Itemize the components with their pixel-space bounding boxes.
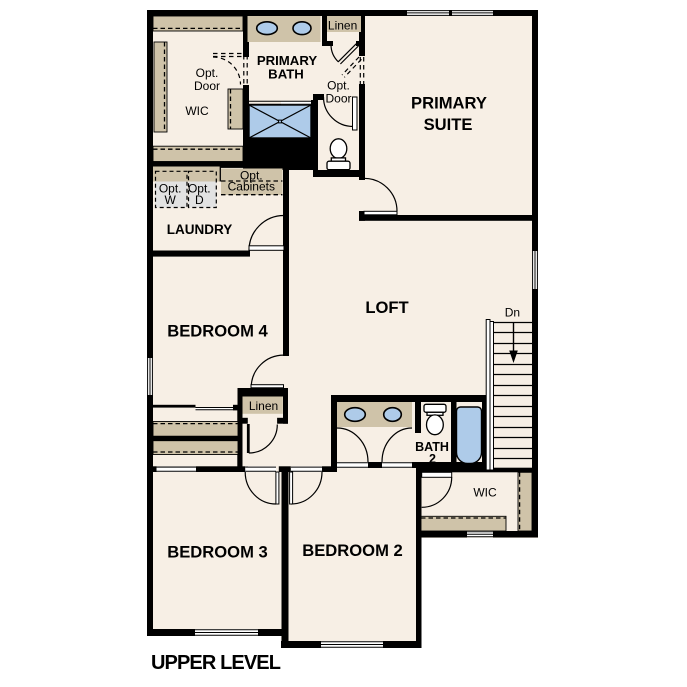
- svg-text:SUITE: SUITE: [424, 115, 473, 134]
- svg-text:BEDROOM 2: BEDROOM 2: [302, 541, 403, 560]
- svg-text:LAUNDRY: LAUNDRY: [167, 222, 233, 237]
- svg-text:WIC: WIC: [185, 104, 209, 118]
- svg-text:W: W: [165, 193, 177, 207]
- svg-text:WIC: WIC: [473, 485, 497, 499]
- svg-text:BEDROOM 3: BEDROOM 3: [167, 543, 268, 562]
- svg-text:Door: Door: [325, 92, 351, 106]
- svg-text:Linen: Linen: [328, 19, 357, 33]
- svg-text:BATH: BATH: [268, 67, 304, 82]
- svg-text:Door: Door: [194, 79, 220, 93]
- svg-text:Dn: Dn: [505, 305, 520, 319]
- svg-text:Opt.: Opt.: [196, 66, 219, 80]
- svg-text:2: 2: [429, 452, 436, 466]
- svg-text:Cabinets: Cabinets: [228, 180, 275, 194]
- svg-text:LOFT: LOFT: [365, 298, 408, 317]
- svg-text:PRIMARY: PRIMARY: [411, 94, 487, 113]
- svg-text:UPPER LEVEL: UPPER LEVEL: [151, 652, 281, 674]
- svg-text:D: D: [195, 193, 204, 207]
- svg-text:BEDROOM 4: BEDROOM 4: [167, 322, 268, 341]
- svg-text:Opt.: Opt.: [327, 79, 350, 93]
- svg-text:Linen: Linen: [249, 399, 278, 413]
